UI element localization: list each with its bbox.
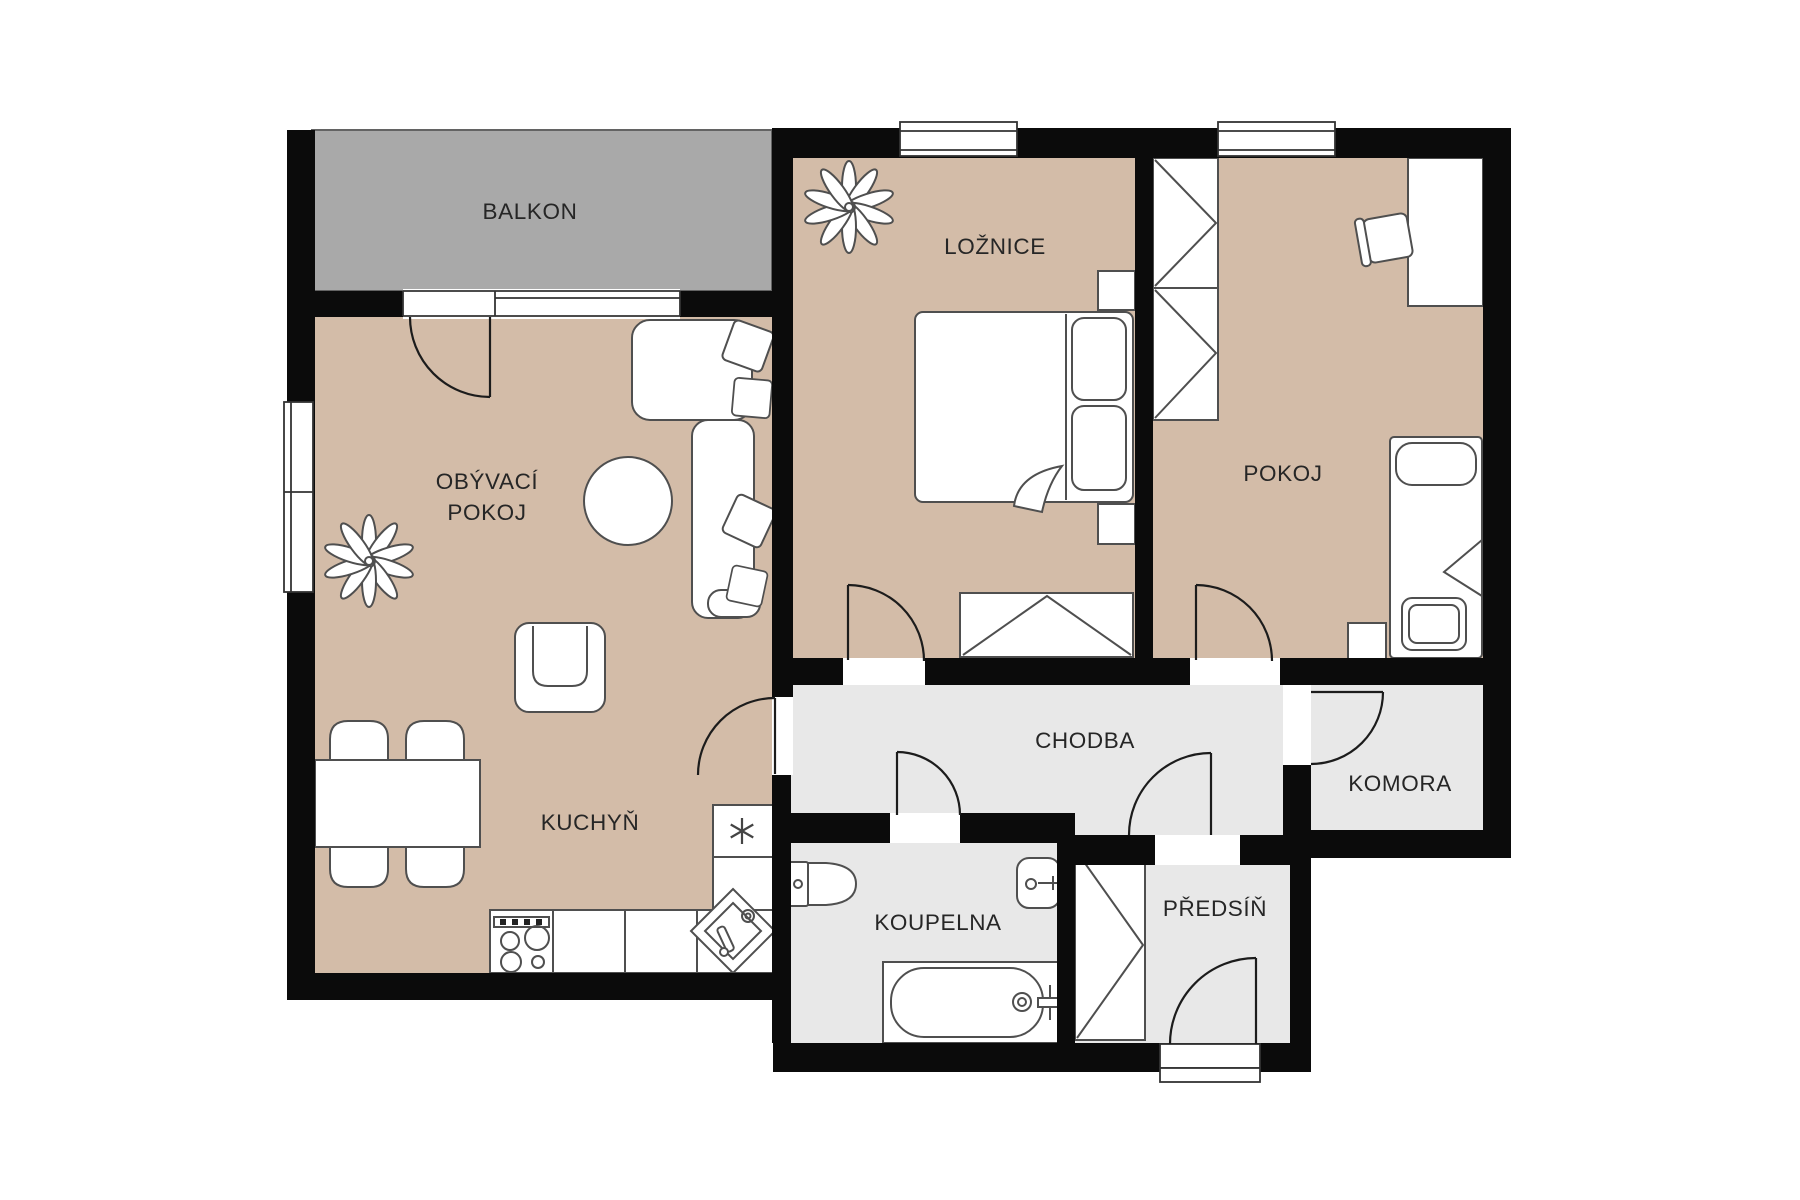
bed-pillow-icon	[1072, 406, 1126, 490]
label-chodba: CHODBA	[1035, 728, 1135, 753]
window-loznice	[900, 122, 1017, 156]
toilet	[789, 862, 856, 906]
label-predsin: PŘEDSÍŇ	[1163, 896, 1267, 921]
round-table	[584, 457, 672, 545]
dining-chair	[330, 721, 388, 761]
double-bed	[915, 312, 1133, 512]
room-komora-floor	[1311, 685, 1483, 830]
dining-chair	[406, 721, 464, 761]
label-loznice: LOŽNICE	[944, 234, 1046, 259]
floorplan-svg: BALKON OBÝVACÍ POKOJ KUCHYŇ LOŽNICE POKO…	[0, 0, 1800, 1200]
chest-of-drawers	[960, 593, 1133, 657]
label-obyvaci-line2: POKOJ	[447, 500, 526, 525]
desk	[1408, 158, 1483, 306]
sofa-pillow-icon	[726, 565, 768, 607]
bathroom-sink	[1017, 858, 1060, 908]
dining-table	[315, 760, 480, 847]
entry-wardrobe	[1075, 850, 1145, 1040]
nightstand	[1098, 504, 1135, 544]
dining-chair	[406, 847, 464, 887]
bed-pillow-icon	[1396, 443, 1476, 485]
label-balkon: BALKON	[483, 199, 578, 224]
wardrobe	[1153, 158, 1218, 420]
label-kuchyn: KUCHYŇ	[541, 810, 640, 835]
window-pokoj	[1218, 122, 1335, 156]
nightstand	[1098, 271, 1135, 310]
bed-pillow-icon	[1072, 318, 1126, 400]
label-pokoj: POKOJ	[1243, 461, 1322, 486]
label-koupelna: KOUPELNA	[874, 910, 1001, 935]
single-bed	[1390, 437, 1482, 658]
bathtub	[883, 962, 1062, 1043]
dining-chair	[330, 847, 388, 887]
sofa-pillow-icon	[732, 378, 773, 419]
armchair	[515, 623, 605, 712]
label-obyvaci-line1: OBÝVACÍ	[436, 469, 539, 494]
floorplan-canvas: BALKON OBÝVACÍ POKOJ KUCHYŇ LOŽNICE POKO…	[0, 0, 1800, 1200]
label-komora: KOMORA	[1348, 771, 1452, 796]
entrance-threshold	[1160, 1044, 1260, 1082]
nightstand	[1348, 623, 1386, 661]
window-living-left	[284, 402, 313, 592]
